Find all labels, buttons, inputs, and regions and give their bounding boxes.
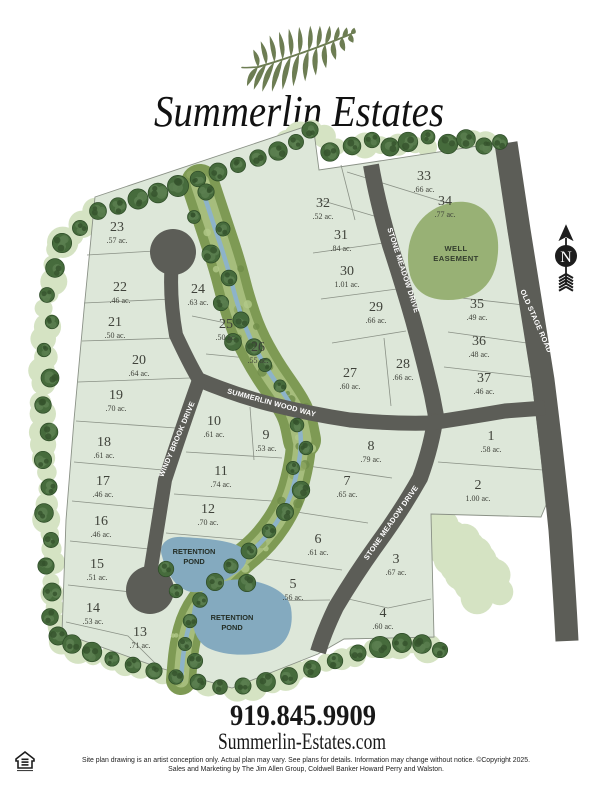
svg-text:10: 10 <box>207 414 221 429</box>
svg-text:5: 5 <box>290 577 297 592</box>
svg-text:4: 4 <box>380 606 387 621</box>
svg-text:.48 ac.: .48 ac. <box>468 350 489 359</box>
svg-text:.65 ac.: .65 ac. <box>336 490 357 499</box>
svg-text:RETENTION: RETENTION <box>211 613 254 622</box>
svg-text:36: 36 <box>472 334 486 349</box>
svg-text:EASEMENT: EASEMENT <box>433 254 478 263</box>
svg-text:29: 29 <box>369 300 383 315</box>
svg-text:.56 ac.: .56 ac. <box>282 593 303 602</box>
svg-text:18: 18 <box>97 435 111 450</box>
svg-text:30: 30 <box>340 264 354 279</box>
svg-text:.57 ac.: .57 ac. <box>106 236 127 245</box>
svg-text:27: 27 <box>343 366 357 381</box>
svg-text:.53 ac.: .53 ac. <box>82 617 103 626</box>
svg-text:WELL: WELL <box>444 244 467 253</box>
svg-text:919.845.9909: 919.845.9909 <box>230 699 376 732</box>
svg-text:8: 8 <box>368 439 375 454</box>
svg-text:.84 ac.: .84 ac. <box>330 244 351 253</box>
svg-text:9: 9 <box>263 428 270 443</box>
svg-text:.61 ac.: .61 ac. <box>307 548 328 557</box>
svg-text:.79 ac.: .79 ac. <box>360 455 381 464</box>
svg-text:28: 28 <box>396 357 410 372</box>
svg-text:22: 22 <box>113 280 127 295</box>
svg-text:31: 31 <box>334 228 348 243</box>
svg-text:25: 25 <box>219 317 233 332</box>
svg-text:.49 ac.: .49 ac. <box>466 313 487 322</box>
svg-text:.61 ac.: .61 ac. <box>93 451 114 460</box>
svg-text:.51 ac.: .51 ac. <box>86 573 107 582</box>
svg-text:35: 35 <box>470 297 484 312</box>
svg-text:.46 ac.: .46 ac. <box>109 296 130 305</box>
svg-text:.53 ac.: .53 ac. <box>255 444 276 453</box>
svg-text:17: 17 <box>96 474 110 489</box>
svg-text:33: 33 <box>417 169 431 184</box>
svg-text:26: 26 <box>251 340 265 355</box>
svg-text:2: 2 <box>475 478 482 493</box>
svg-text:34: 34 <box>438 194 452 209</box>
svg-text:24: 24 <box>191 282 205 297</box>
svg-text:POND: POND <box>183 557 205 566</box>
svg-text:.61 ac.: .61 ac. <box>203 430 224 439</box>
svg-text:12: 12 <box>201 502 215 517</box>
svg-text:.77 ac.: .77 ac. <box>434 210 455 219</box>
svg-text:Sales and Marketing by The Jim: Sales and Marketing by The Jim Allen Gro… <box>168 766 444 773</box>
svg-text:RETENTION: RETENTION <box>173 547 216 556</box>
svg-text:20: 20 <box>132 353 146 368</box>
svg-text:POND: POND <box>221 623 243 632</box>
svg-text:.46 ac.: .46 ac. <box>473 387 494 396</box>
svg-text:37: 37 <box>477 371 491 386</box>
svg-text:.74 ac.: .74 ac. <box>210 480 231 489</box>
svg-text:16: 16 <box>94 514 108 529</box>
svg-text:15: 15 <box>90 557 104 572</box>
svg-text:6: 6 <box>315 532 322 547</box>
svg-text:11: 11 <box>214 464 227 479</box>
svg-text:.63 ac.: .63 ac. <box>187 298 208 307</box>
svg-text:19: 19 <box>109 388 123 403</box>
svg-text:.50 ac.: .50 ac. <box>104 331 125 340</box>
svg-text:Site plan drawing is an artist: Site plan drawing is an artist conceptio… <box>82 756 530 764</box>
svg-text:N: N <box>560 249 572 266</box>
svg-text:.66 ac.: .66 ac. <box>413 185 434 194</box>
svg-text:.64 ac.: .64 ac. <box>128 369 149 378</box>
svg-text:7: 7 <box>344 474 351 489</box>
svg-text:.70 ac.: .70 ac. <box>105 404 126 413</box>
svg-text:.50 ac.: .50 ac. <box>215 333 236 342</box>
svg-text:14: 14 <box>86 601 100 616</box>
svg-text:.60 ac.: .60 ac. <box>372 622 393 631</box>
svg-text:.66 ac.: .66 ac. <box>392 373 413 382</box>
svg-text:32: 32 <box>316 196 330 211</box>
svg-text:Summerlin-Estates.com: Summerlin-Estates.com <box>218 729 386 754</box>
svg-text:.71 ac.: .71 ac. <box>129 641 150 650</box>
svg-text:.46 ac.: .46 ac. <box>92 490 113 499</box>
svg-text:.60 ac.: .60 ac. <box>339 382 360 391</box>
svg-text:1: 1 <box>488 429 495 444</box>
svg-text:.70 ac.: .70 ac. <box>197 518 218 527</box>
svg-text:.52 ac.: .52 ac. <box>312 212 333 221</box>
svg-text:1.01 ac.: 1.01 ac. <box>334 280 359 289</box>
svg-text:.67 ac.: .67 ac. <box>385 568 406 577</box>
svg-text:.58 ac.: .58 ac. <box>480 445 501 454</box>
svg-text:13: 13 <box>133 625 147 640</box>
svg-text:.66 ac.: .66 ac. <box>365 316 386 325</box>
svg-text:23: 23 <box>110 220 124 235</box>
svg-text:3: 3 <box>393 552 400 567</box>
svg-text:.55 ac.: .55 ac. <box>247 356 268 365</box>
svg-text:.46 ac.: .46 ac. <box>90 530 111 539</box>
svg-text:1.00 ac.: 1.00 ac. <box>465 494 490 503</box>
svg-text:21: 21 <box>108 315 122 330</box>
